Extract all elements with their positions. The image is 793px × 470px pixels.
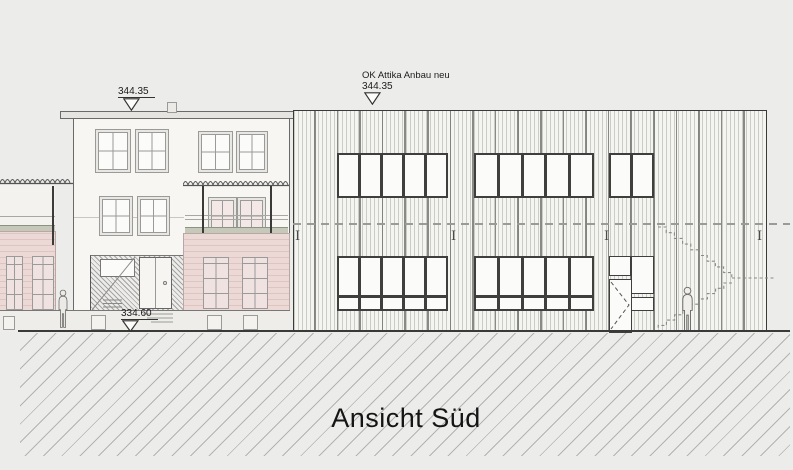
window-pane xyxy=(383,155,402,196)
existing-window xyxy=(137,196,170,236)
window-glass xyxy=(98,132,128,170)
extension-window xyxy=(631,256,654,294)
window-pane xyxy=(405,155,424,196)
extension-building-facade: I I I I xyxy=(293,110,767,332)
person-figure-icon xyxy=(678,286,697,333)
window-pane-small xyxy=(361,298,380,309)
architectural-elevation-canvas: I I I I 344.35 OK Attika Anbau neu 344.3… xyxy=(0,0,793,470)
window-pane-small xyxy=(524,298,545,309)
window-pane-small xyxy=(500,298,521,309)
window-pane xyxy=(361,155,380,196)
window-pane-small xyxy=(383,298,402,309)
extension-window-band-lower xyxy=(337,256,448,311)
window-column xyxy=(361,258,380,309)
cladding-joint-line xyxy=(450,111,452,331)
window-column xyxy=(571,258,592,309)
extension-window-band-upper xyxy=(609,153,654,198)
window-pane xyxy=(547,155,568,196)
level-marker-existing-roof: 344.35 xyxy=(118,86,155,111)
french-door xyxy=(32,256,54,310)
window-pane-small xyxy=(427,298,446,309)
person-figure-icon xyxy=(55,286,71,332)
window-pane xyxy=(611,155,630,196)
extension-window-band-upper xyxy=(474,153,594,198)
window-pane xyxy=(405,258,424,295)
existing-pink-wall xyxy=(183,233,290,312)
window-column xyxy=(524,258,545,309)
level-marker-value: 344.35 xyxy=(362,81,395,92)
level-marker-triangle-icon xyxy=(364,92,381,105)
window-pane xyxy=(361,258,380,295)
existing-roof-slab xyxy=(60,111,294,119)
balcony-post xyxy=(52,186,54,245)
level-marker-extension-roof: OK Attika Anbau neu 344.35 xyxy=(362,70,450,105)
level-marker-label: OK Attika Anbau neu xyxy=(362,70,450,81)
level-marker-value: 344.35 xyxy=(118,86,155,98)
storey-dashed-line xyxy=(293,223,790,225)
balcony-rail-line xyxy=(0,216,55,217)
window-glass xyxy=(239,134,265,170)
extension-window-band-lower xyxy=(474,256,594,311)
window-pane-small xyxy=(476,298,497,309)
basement-window xyxy=(243,315,258,330)
window-glass xyxy=(201,134,230,170)
window-glass xyxy=(140,199,167,233)
window-pane xyxy=(427,155,446,196)
window-pane xyxy=(500,155,521,196)
existing-window xyxy=(135,129,169,173)
window-column xyxy=(339,258,358,309)
chimney xyxy=(167,102,177,113)
window-column xyxy=(500,258,521,309)
cladding-joint-line xyxy=(314,111,316,331)
window-pane xyxy=(547,258,568,295)
existing-window xyxy=(95,129,131,173)
extension-entrance-door xyxy=(609,279,632,333)
steel-column-icon: I xyxy=(295,230,300,243)
balcony-rail-line xyxy=(185,219,288,220)
window-pane-small xyxy=(405,298,424,309)
left-wing-wall xyxy=(0,185,55,226)
balcony-rail-line xyxy=(185,215,288,216)
french-door xyxy=(203,257,229,309)
window-pane xyxy=(524,258,545,295)
roof-tile-edge-icon xyxy=(183,178,289,187)
door-swing-dashed-icon xyxy=(610,280,630,331)
window-pane-small xyxy=(339,298,358,309)
window-above-door xyxy=(609,256,631,276)
french-door xyxy=(242,257,268,309)
extension-window-small xyxy=(631,297,654,311)
drawing-title: Ansicht Süd xyxy=(300,403,512,434)
basement-window xyxy=(3,316,15,330)
window-pane xyxy=(339,258,358,295)
existing-window xyxy=(198,131,233,173)
window-column xyxy=(383,258,402,309)
window-column xyxy=(476,258,497,309)
steel-column-icon: I xyxy=(757,230,762,243)
window-pane xyxy=(427,258,446,295)
window-pane xyxy=(633,155,652,196)
steel-column-icon: I xyxy=(604,230,609,243)
roof-tile-edge-icon xyxy=(0,176,73,185)
window-column xyxy=(427,258,446,309)
window-glass xyxy=(138,132,166,170)
window-glass xyxy=(102,199,130,233)
steel-column-icon: I xyxy=(451,230,456,243)
window-pane xyxy=(383,258,402,295)
extension-window-band-upper xyxy=(337,153,448,198)
level-marker-entrance: 334.60 xyxy=(121,308,158,332)
french-door xyxy=(6,256,23,310)
window-pane xyxy=(571,258,592,295)
window-column xyxy=(547,258,568,309)
window-pane-small xyxy=(571,298,592,309)
window-column xyxy=(405,258,424,309)
door-handle-icon xyxy=(164,282,167,285)
window-pane xyxy=(524,155,545,196)
window-pane xyxy=(500,258,521,295)
window-pane xyxy=(339,155,358,196)
window-pane xyxy=(571,155,592,196)
window-pane-small xyxy=(547,298,568,309)
basement-window xyxy=(207,315,222,330)
level-marker-triangle-icon xyxy=(123,98,140,111)
level-marker-triangle-icon xyxy=(122,320,139,332)
existing-window xyxy=(99,196,133,236)
window-pane xyxy=(476,155,497,196)
window-pane xyxy=(476,258,497,295)
level-marker-value: 334.60 xyxy=(121,308,158,320)
ground-hatch xyxy=(20,333,790,456)
existing-window xyxy=(236,131,268,173)
